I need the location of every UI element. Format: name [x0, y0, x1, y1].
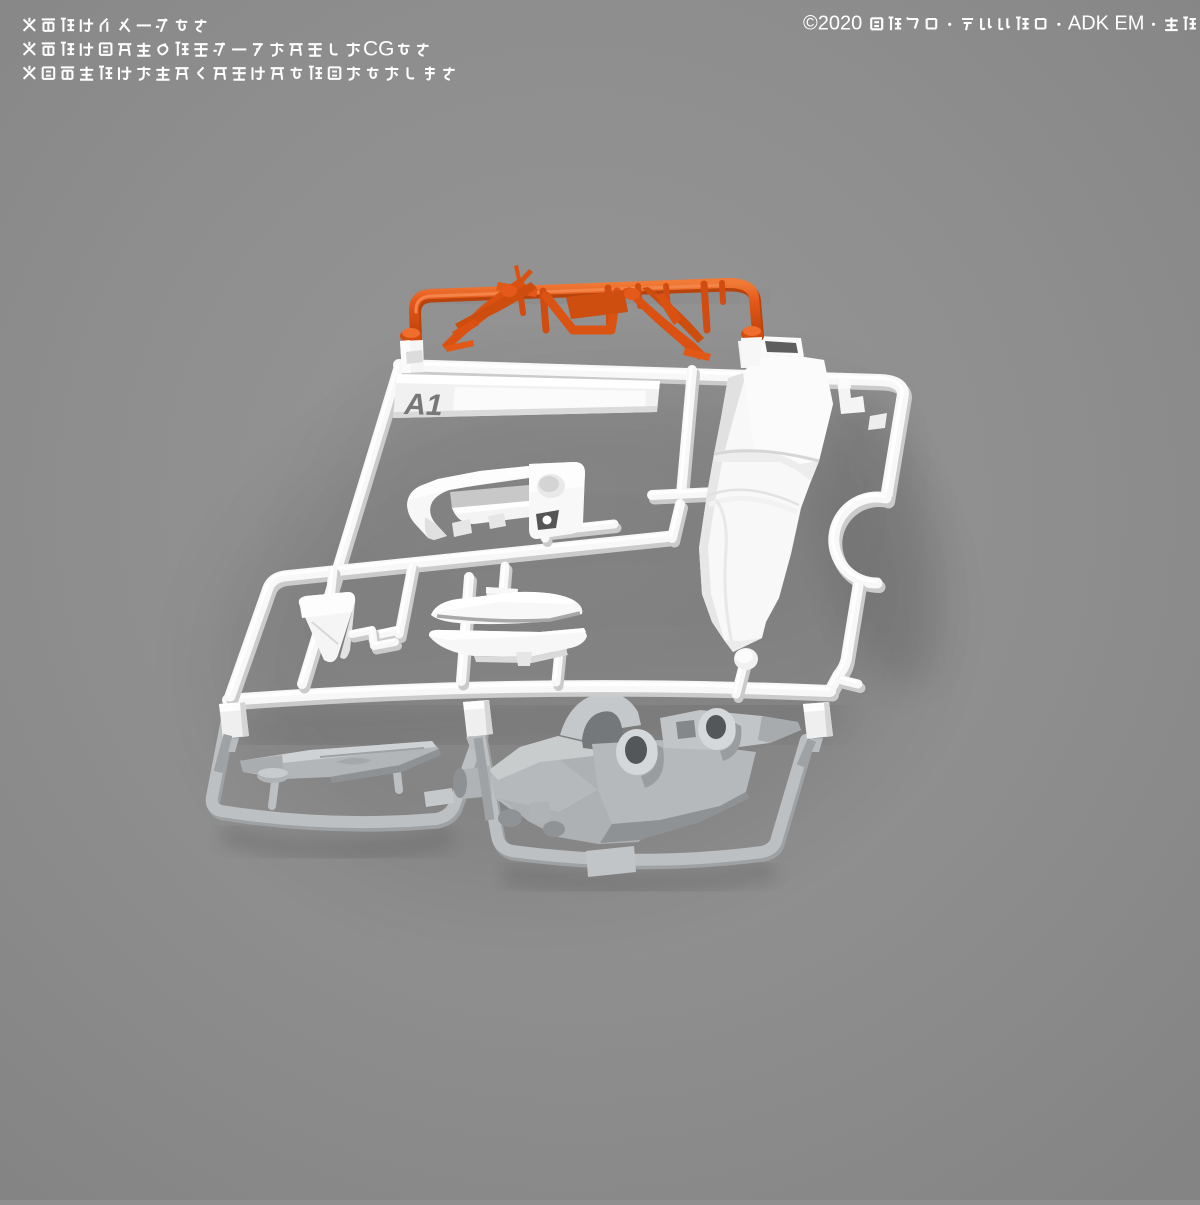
- svg-text:EM: EM: [1114, 13, 1144, 35]
- svg-text:A1: A1: [403, 388, 443, 422]
- svg-text:ADK: ADK: [1068, 13, 1110, 35]
- svg-text:©2020: ©2020: [803, 13, 862, 35]
- svg-text:CG: CG: [363, 37, 394, 60]
